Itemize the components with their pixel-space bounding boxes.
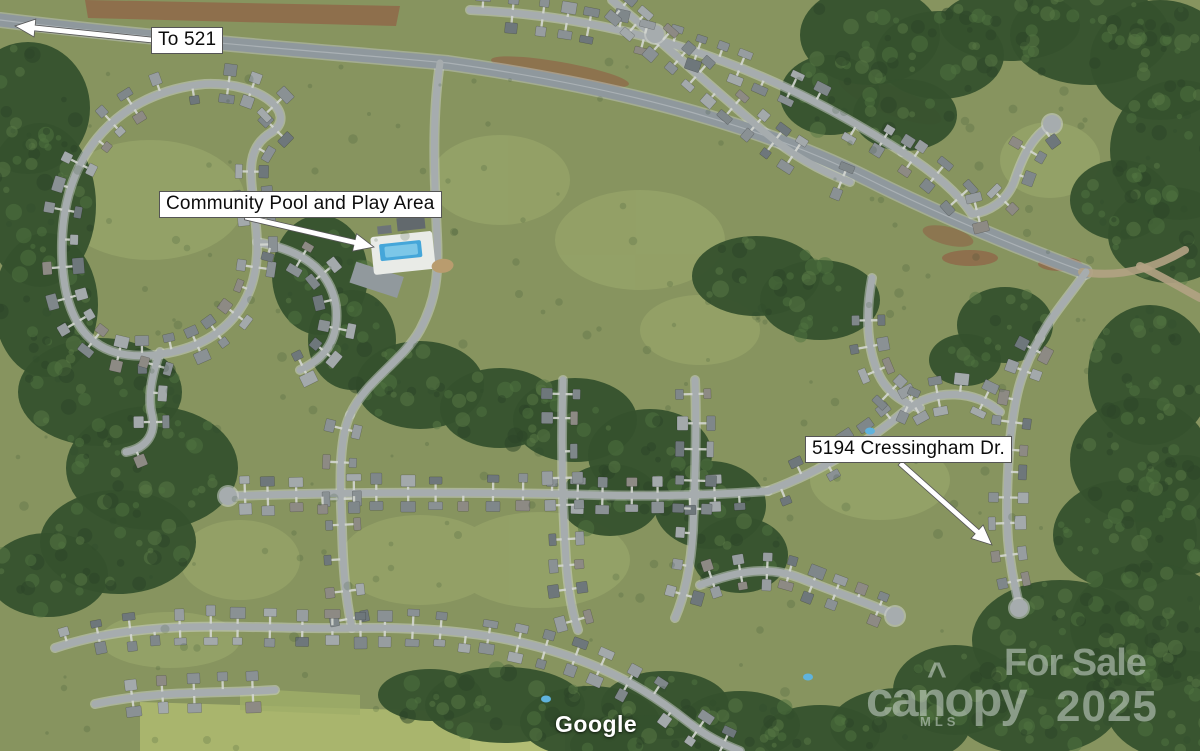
mls-listing-photo: To 521 Community Pool and Play Area 5194… <box>0 0 1200 751</box>
annotation-pool-label: Community Pool and Play Area <box>159 191 442 218</box>
backyard-pool <box>865 428 875 435</box>
annotation-to-521-label: To 521 <box>151 27 223 54</box>
backyard-pool <box>541 696 551 703</box>
backyard-pool <box>803 674 813 681</box>
annotation-address-label: 5194 Cressingham Dr. <box>805 436 1012 463</box>
google-watermark: Google <box>555 711 637 738</box>
pool-building <box>377 225 392 234</box>
aerial-map <box>0 0 1200 751</box>
